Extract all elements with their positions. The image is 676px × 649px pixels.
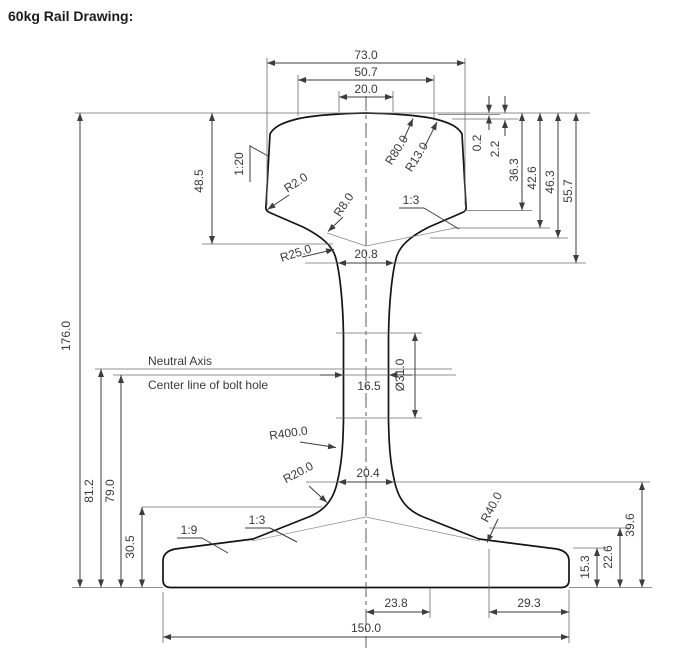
dim-48-5: 48.5 <box>192 169 206 193</box>
radius-r40: R40.0 <box>478 489 506 524</box>
rail-drawing-canvas: 73.0 50.7 20.0 0.2 2.2 36.3 42.6 46.3 55… <box>0 0 676 649</box>
dim-22-6: 22.6 <box>601 545 615 569</box>
dim-79: 79.0 <box>103 479 117 503</box>
dim-73: 73.0 <box>354 48 378 62</box>
dim-0-2: 0.2 <box>470 134 484 151</box>
dim-55-7: 55.7 <box>561 179 575 203</box>
dimension-lines <box>80 63 642 637</box>
radius-r25: R25.0 <box>278 241 313 264</box>
dim-16-5: 16.5 <box>357 379 381 393</box>
slope-1-3-foot: 1:3 <box>249 513 266 527</box>
dim-36-3: 36.3 <box>507 158 521 182</box>
dim-23-8: 23.8 <box>384 596 408 610</box>
dimension-labels: 73.0 50.7 20.0 0.2 2.2 36.3 42.6 46.3 55… <box>59 48 637 635</box>
dim-2-2: 2.2 <box>488 140 502 157</box>
dim-81-2: 81.2 <box>82 479 96 503</box>
extension-lines <box>72 58 652 643</box>
dim-15-3: 15.3 <box>578 555 592 579</box>
slope-1-3-head: 1:3 <box>403 193 420 207</box>
dim-20: 20.0 <box>354 82 378 96</box>
dim-150: 150.0 <box>351 621 381 635</box>
radius-r400: R400.0 <box>268 423 309 442</box>
dim-39-6: 39.6 <box>623 513 637 537</box>
dim-42-6: 42.6 <box>525 166 539 190</box>
dim-176: 176.0 <box>59 321 73 351</box>
slope-1-20: 1:20 <box>232 152 246 176</box>
dim-50-7: 50.7 <box>354 65 378 79</box>
slope-1-9: 1:9 <box>181 523 198 537</box>
dim-20-8: 20.8 <box>354 247 378 261</box>
dim-20-4: 20.4 <box>356 466 380 480</box>
dim-30-5: 30.5 <box>123 535 137 559</box>
dim-29-3: 29.3 <box>517 596 541 610</box>
radius-r8: R8.0 <box>331 190 357 219</box>
leader-lines <box>177 119 498 554</box>
dim-dia-31: Ø31.0 <box>393 358 407 391</box>
neutral-axis-label: Neutral Axis <box>148 354 212 368</box>
radius-r2: R2.0 <box>281 170 310 196</box>
bolt-center-label: Center line of bolt hole <box>148 378 268 392</box>
dim-46-3: 46.3 <box>543 170 557 194</box>
